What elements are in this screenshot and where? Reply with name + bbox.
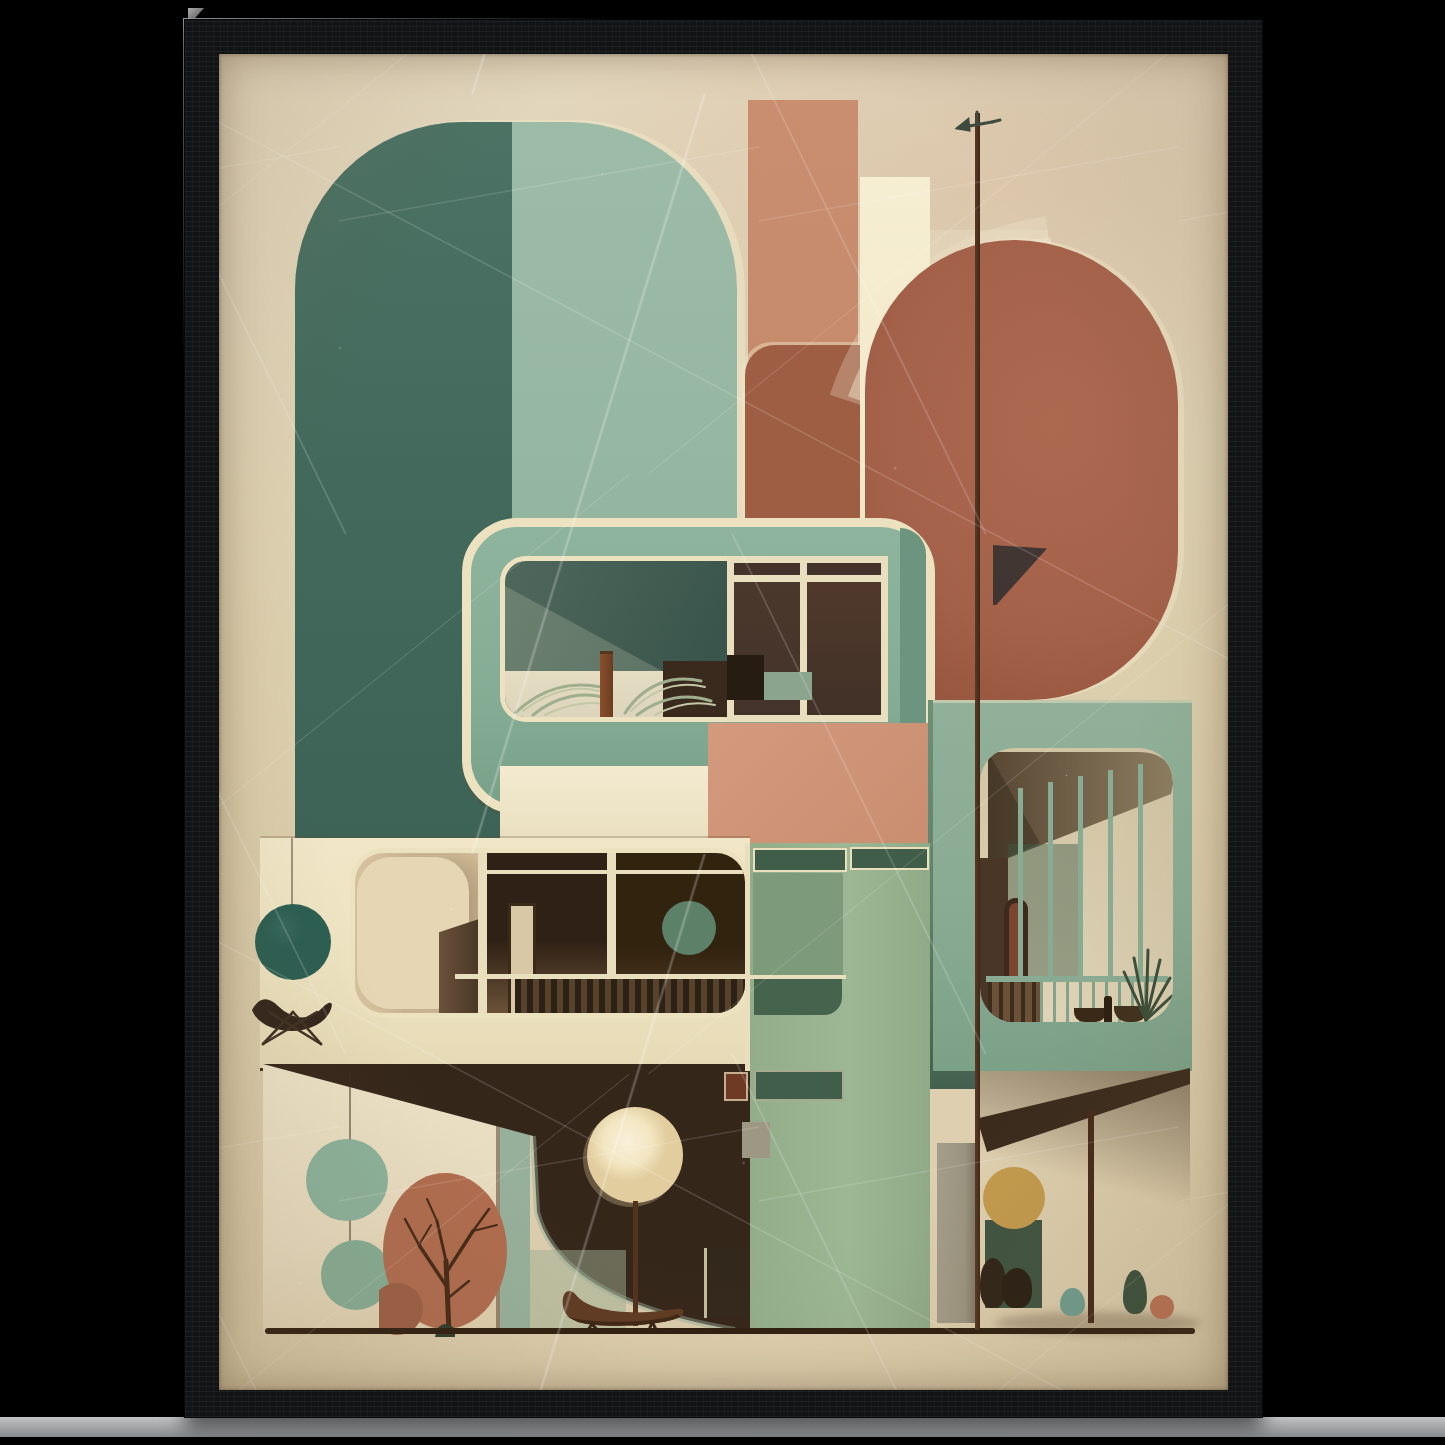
ochre-shrub (983, 1167, 1045, 1229)
right-pole (1088, 1110, 1094, 1323)
product-photo-canvas (0, 0, 1445, 1445)
art-poster (219, 54, 1228, 1390)
teal-teardrop-shrub (1060, 1288, 1085, 1316)
tower-pane-dark-block (754, 979, 842, 1015)
weathervane-icon (954, 106, 1002, 140)
rust-berry-shrub (1150, 1295, 1174, 1319)
ground-line (265, 1328, 1195, 1334)
moon-lamp (587, 1107, 683, 1203)
concrete-chip (742, 1122, 770, 1158)
picture-frame (185, 20, 1262, 1417)
tower-pane (754, 1070, 844, 1101)
concrete-pillar (937, 1143, 977, 1323)
sage-tower (750, 843, 930, 1330)
tower-pane (850, 847, 929, 870)
autumn-tree (379, 1169, 531, 1337)
sage-circle-top (306, 1139, 388, 1221)
tower-pane (753, 848, 847, 872)
cabinet-silhouette (704, 1248, 749, 1318)
display-stand-strip (0, 1417, 1445, 1437)
rust-pane-small (724, 1072, 748, 1101)
lounge-chair (556, 1280, 688, 1334)
tower-pane-mid (753, 873, 843, 975)
weathervane-pole (975, 113, 980, 1330)
dark-bush (1002, 1268, 1032, 1308)
